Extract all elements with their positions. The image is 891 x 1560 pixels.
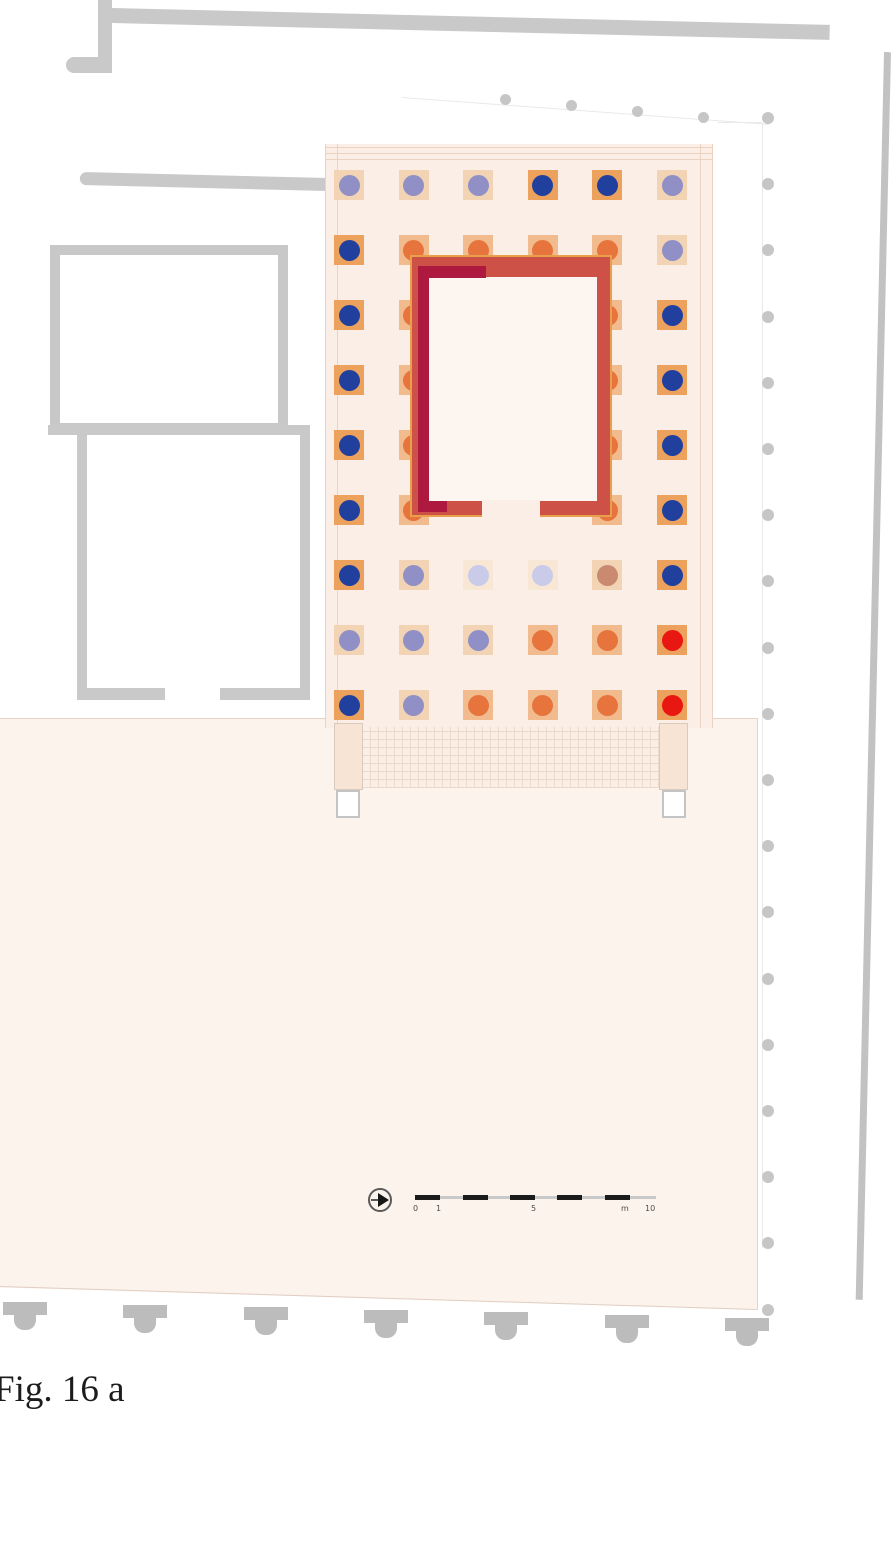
temple-column-orange — [597, 630, 618, 651]
colonnade-dot — [762, 244, 774, 256]
scale-bar-segment — [557, 1195, 582, 1200]
anta-right — [659, 723, 688, 790]
colonnade-dot — [762, 178, 774, 190]
room-lower-right-wall — [300, 425, 310, 700]
temple-column-pale_lavender — [532, 565, 553, 586]
room-lower-left-wall — [77, 425, 87, 700]
north-wall-foot — [66, 57, 112, 73]
scale-bar-label: 1 — [436, 1204, 441, 1213]
platform-right-edge — [712, 144, 713, 728]
temple-column-orange — [532, 695, 553, 716]
room-lower-bottom-wall-right — [220, 688, 310, 700]
temple-column-navy — [339, 240, 360, 261]
column-base-bar — [3, 1302, 47, 1315]
figure-caption: Fig. 16 a — [0, 1368, 125, 1411]
colonnade-dot — [566, 100, 577, 111]
scale-bar-gap — [582, 1196, 605, 1199]
temple-column-red — [662, 630, 683, 651]
temple-column-lavender — [403, 630, 424, 651]
column-base-bar — [725, 1318, 769, 1331]
temple-column-navy — [532, 175, 553, 196]
temple-column-navy — [662, 305, 683, 326]
temple-column-navy — [339, 565, 360, 586]
cella-wall-crimson-bottom — [418, 501, 447, 512]
cella-floor — [425, 277, 597, 501]
colonnade-dot — [762, 575, 774, 587]
column-base-stub — [495, 1325, 517, 1340]
temple-column-lavender — [403, 565, 424, 586]
scale-bar-gap — [488, 1196, 510, 1199]
scale-bar-segment — [510, 1195, 535, 1200]
colonnade-dot — [762, 1237, 774, 1249]
scale-bar-segment — [605, 1195, 630, 1200]
column-base-bar — [123, 1305, 167, 1318]
cella — [410, 255, 612, 517]
precinct-corner-line — [718, 122, 762, 123]
anta-right-base — [662, 790, 686, 818]
temple-column-lavender — [339, 630, 360, 651]
temple-column-lavender — [339, 175, 360, 196]
temple-column-lavender — [403, 695, 424, 716]
colonnade-dot — [762, 906, 774, 918]
temple-front-steps — [362, 727, 660, 788]
platform-right-step — [700, 144, 701, 728]
east-boundary-wall — [856, 52, 891, 1300]
temple-column-navy — [339, 500, 360, 521]
platform-left-edge — [325, 144, 326, 728]
anta-left — [334, 723, 363, 790]
cella-wall-crimson-left — [418, 266, 429, 511]
north-stoa-wall — [112, 8, 830, 40]
anta-left-base — [336, 790, 360, 818]
colonnade-dot — [762, 1039, 774, 1051]
column-base-stub — [134, 1318, 156, 1333]
colonnade-dot — [762, 1171, 774, 1183]
temple-column-red — [662, 695, 683, 716]
scale-bar-gap — [535, 1196, 557, 1199]
scale-bar-label: m — [621, 1204, 629, 1213]
scale-bar-gap — [440, 1196, 463, 1199]
room-upper — [50, 245, 288, 433]
cella-door-opening — [482, 500, 540, 517]
colonnade-dot — [762, 1304, 774, 1316]
site-plan: 015m10 Fig. 16 a — [0, 0, 891, 1560]
room-lower-top-wall — [48, 425, 310, 435]
temple-column-navy — [662, 370, 683, 391]
column-base-stub — [616, 1328, 638, 1343]
temple-column-dusty — [597, 565, 618, 586]
scale-bar-label: 5 — [531, 1204, 536, 1213]
plaza-courtyard — [0, 718, 758, 1310]
temple-column-lavender — [468, 175, 489, 196]
temple-column-navy — [339, 695, 360, 716]
column-base-stub — [255, 1320, 277, 1335]
colonnade-dot — [698, 112, 709, 123]
temple-column-lavender — [662, 240, 683, 261]
temple-column-lavender — [468, 630, 489, 651]
column-base-stub — [14, 1315, 36, 1330]
colonnade-dot — [762, 1105, 774, 1117]
colonnade-dot — [762, 112, 774, 124]
temple-column-orange — [532, 630, 553, 651]
colonnade-dot — [762, 642, 774, 654]
scale-bar-label: 10 — [645, 1204, 655, 1213]
temple-column-orange — [597, 695, 618, 716]
colonnade-dot — [762, 377, 774, 389]
column-base-bar — [364, 1310, 408, 1323]
column-base-bar — [244, 1307, 288, 1320]
temple-column-navy — [662, 500, 683, 521]
scale-bar-label: 0 — [413, 1204, 418, 1213]
crepidoma-line — [325, 159, 713, 160]
temple-column-lavender — [403, 175, 424, 196]
colonnade-dot — [632, 106, 643, 117]
room-lower-bottom-wall-left — [77, 688, 165, 700]
crepidoma-line — [325, 153, 713, 154]
colonnade-dot — [762, 774, 774, 786]
temple-column-lavender — [662, 175, 683, 196]
temple-column-navy — [597, 175, 618, 196]
temple-column-navy — [662, 435, 683, 456]
colonnade-dot — [500, 94, 511, 105]
colonnade-dot — [762, 708, 774, 720]
column-base-bar — [605, 1315, 649, 1328]
west-wall-bar — [80, 172, 328, 191]
temple-column-pale_lavender — [468, 565, 489, 586]
temple-column-navy — [339, 370, 360, 391]
scale-bar-gap — [630, 1196, 656, 1199]
north-arrow-icon — [368, 1188, 392, 1212]
scale-bar-segment — [415, 1195, 440, 1200]
scale-bar-segment — [463, 1195, 488, 1200]
colonnade-dot — [762, 973, 774, 985]
colonnade-dot — [762, 443, 774, 455]
temple-column-navy — [339, 305, 360, 326]
colonnade-dot — [762, 311, 774, 323]
crepidoma-line — [325, 147, 713, 148]
room-lower — [48, 425, 310, 700]
colonnade-dot — [762, 509, 774, 521]
precinct-top-line — [402, 97, 769, 125]
temple-column-orange — [468, 695, 489, 716]
column-base-bar — [484, 1312, 528, 1325]
colonnade-dot — [762, 840, 774, 852]
column-base-stub — [736, 1331, 758, 1346]
temple-column-navy — [339, 435, 360, 456]
column-base-stub — [375, 1323, 397, 1338]
precinct-right-line — [762, 123, 763, 1248]
temple-column-navy — [662, 565, 683, 586]
